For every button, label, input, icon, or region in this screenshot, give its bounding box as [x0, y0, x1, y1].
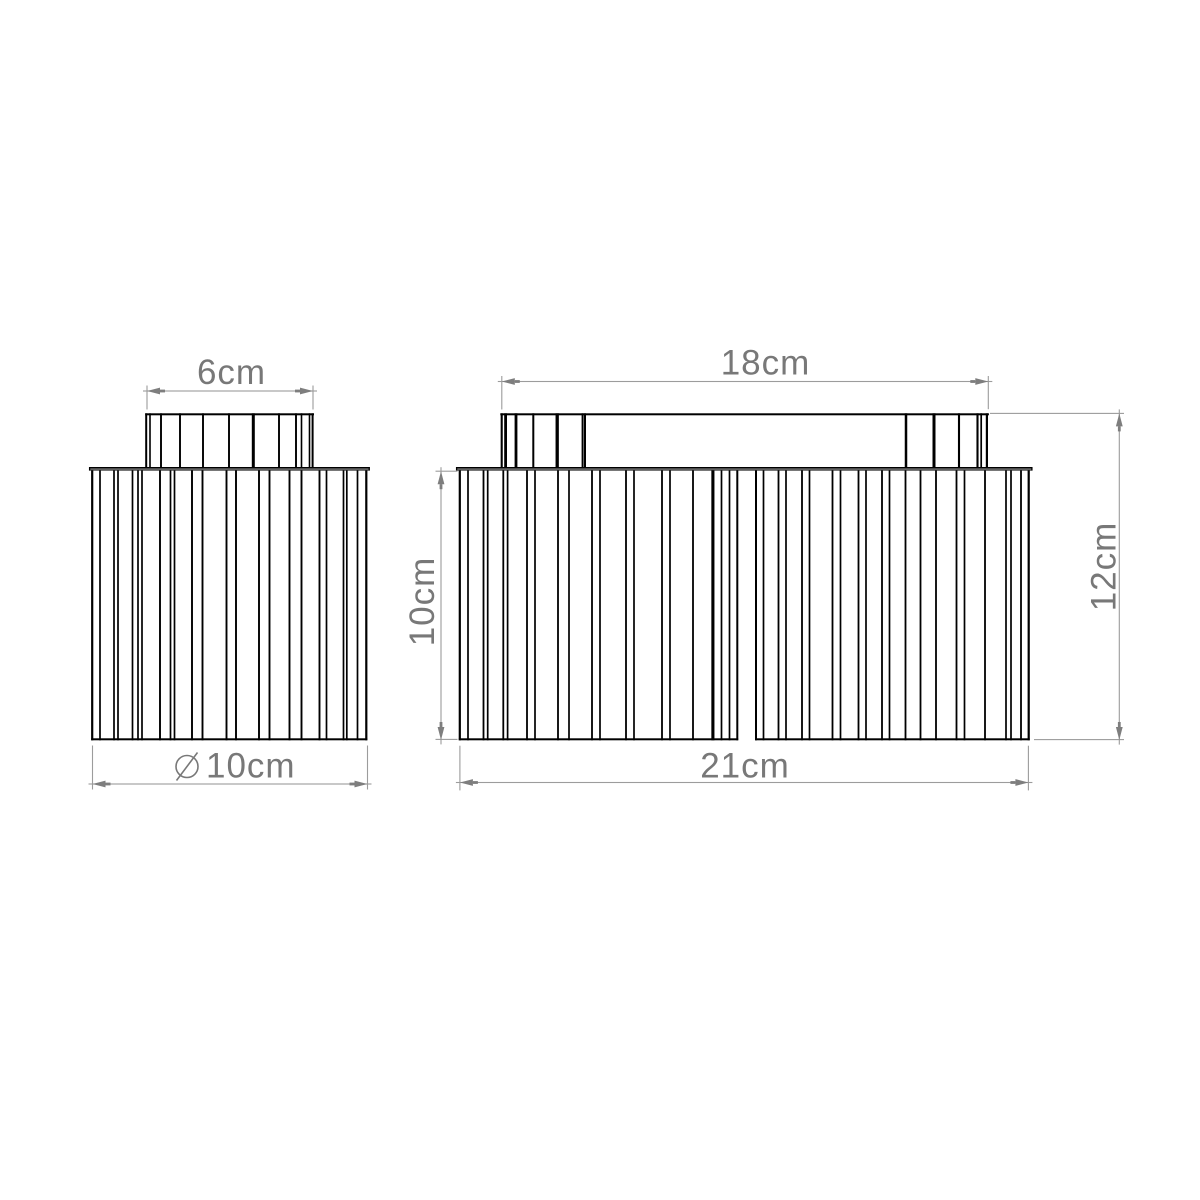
svg-text:12cm: 12cm	[1085, 522, 1124, 612]
svg-text:18cm: 18cm	[721, 344, 811, 383]
svg-text:10cm: 10cm	[403, 557, 442, 647]
svg-text:21cm: 21cm	[700, 746, 790, 785]
svg-text:10cm: 10cm	[206, 747, 296, 786]
svg-text:6cm: 6cm	[197, 353, 266, 392]
